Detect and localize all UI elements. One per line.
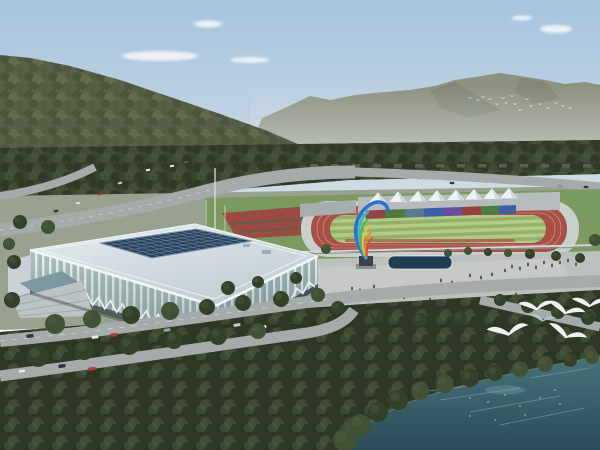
- tree-highlight: [223, 283, 229, 289]
- tree-highlight: [237, 297, 244, 304]
- tree-highlight: [15, 217, 21, 223]
- water-sparkle: [469, 397, 470, 398]
- stand-color-segment: [424, 208, 444, 217]
- tree-highlight: [587, 352, 593, 358]
- water-sparkle: [539, 397, 540, 398]
- tree-highlight: [85, 312, 93, 320]
- person: [351, 287, 352, 291]
- tree-highlight: [489, 367, 496, 374]
- tree-highlight: [167, 333, 175, 341]
- tree-highlight: [505, 250, 509, 254]
- water-sparkle: [524, 414, 525, 415]
- tree-highlight: [30, 348, 40, 358]
- water-sparkle: [559, 403, 560, 404]
- tree-highlight: [485, 249, 489, 253]
- stand-color-segment: [481, 206, 499, 215]
- cloud: [540, 25, 572, 33]
- facility-block: [415, 164, 423, 168]
- tree-highlight: [372, 310, 378, 316]
- car: [482, 183, 487, 185]
- car: [26, 334, 33, 338]
- person: [535, 266, 536, 270]
- person: [551, 264, 552, 268]
- facility-block: [394, 164, 402, 168]
- tree-highlight: [211, 329, 219, 337]
- tree-highlight: [333, 303, 339, 309]
- tree-highlight: [9, 257, 15, 263]
- facility-block: [457, 164, 465, 168]
- tree-highlight: [565, 355, 571, 361]
- tree-highlight: [201, 301, 208, 308]
- person: [519, 267, 520, 271]
- tree-highlight: [252, 325, 259, 332]
- car: [286, 321, 293, 325]
- person: [504, 269, 505, 273]
- tree-highlight: [445, 250, 449, 254]
- stand-color-segment: [462, 206, 481, 215]
- tree-highlight: [43, 222, 49, 228]
- water-sparkle: [487, 401, 488, 402]
- car: [88, 367, 95, 371]
- tree-highlight: [5, 240, 10, 245]
- tree-highlight: [336, 431, 347, 442]
- tree-highlight: [313, 290, 319, 296]
- tree-highlight: [514, 363, 521, 370]
- person: [480, 276, 481, 280]
- car: [418, 180, 423, 182]
- tree-highlight: [391, 393, 400, 402]
- tree-highlight: [275, 293, 282, 300]
- person: [511, 265, 512, 269]
- roof-vent: [262, 250, 271, 254]
- water-sparkle: [519, 405, 520, 406]
- car: [584, 186, 589, 188]
- facility-block: [541, 164, 549, 168]
- facility-block: [562, 164, 570, 168]
- facility-block: [520, 164, 528, 168]
- person: [543, 261, 544, 265]
- car: [91, 335, 98, 339]
- tree-highlight: [163, 304, 171, 312]
- stand-color-segment: [499, 205, 516, 214]
- cloud: [512, 16, 532, 21]
- car: [450, 182, 455, 184]
- facility-block: [478, 164, 486, 168]
- person: [575, 263, 576, 267]
- tree-highlight: [552, 252, 557, 257]
- person: [491, 273, 492, 277]
- cloud: [122, 51, 198, 61]
- water-sparkle: [469, 415, 470, 416]
- person: [567, 259, 568, 263]
- tree-highlight: [124, 308, 132, 316]
- tree-highlight: [48, 317, 57, 326]
- car: [110, 333, 117, 337]
- roof-vent: [243, 244, 250, 247]
- person: [527, 263, 528, 267]
- facility-block: [499, 164, 507, 168]
- tree-highlight: [254, 278, 259, 283]
- person: [559, 261, 560, 265]
- water-sparkle: [494, 419, 495, 420]
- car: [558, 185, 563, 187]
- tree-highlight: [413, 384, 421, 392]
- plaza-pond: [388, 256, 452, 269]
- water-sparkle: [504, 394, 505, 395]
- tree-highlight: [322, 245, 327, 250]
- tree-highlight: [438, 377, 446, 385]
- stand-color-segment: [405, 208, 424, 217]
- person: [440, 279, 441, 283]
- car: [163, 328, 170, 332]
- facility-block: [373, 164, 381, 168]
- tree-highlight: [496, 296, 501, 301]
- tree-highlight: [352, 417, 362, 427]
- tree-highlight: [465, 248, 469, 252]
- tree-highlight: [371, 405, 380, 414]
- tree-highlight: [292, 274, 297, 279]
- tree-highlight: [526, 250, 531, 255]
- cloud: [230, 57, 270, 63]
- car: [58, 364, 65, 368]
- water-sparkle: [554, 389, 555, 390]
- tree-highlight: [6, 294, 13, 301]
- tree-highlight: [539, 358, 546, 365]
- tree-highlight: [463, 371, 471, 379]
- tree-highlight: [122, 338, 131, 347]
- tree-highlight: [591, 236, 596, 241]
- tree-highlight: [583, 313, 589, 319]
- facility-block: [583, 164, 591, 168]
- rendering-image: [0, 0, 600, 450]
- tree-highlight: [415, 315, 421, 321]
- car: [18, 369, 25, 373]
- person: [373, 285, 374, 289]
- tree-highlight: [77, 343, 86, 352]
- scene-svg: [0, 0, 600, 450]
- tree-highlight: [455, 313, 461, 319]
- facility-block: [436, 164, 444, 168]
- cloud: [194, 21, 222, 28]
- stand-color-segment: [444, 207, 462, 216]
- tree-highlight: [576, 254, 581, 259]
- person: [469, 274, 470, 278]
